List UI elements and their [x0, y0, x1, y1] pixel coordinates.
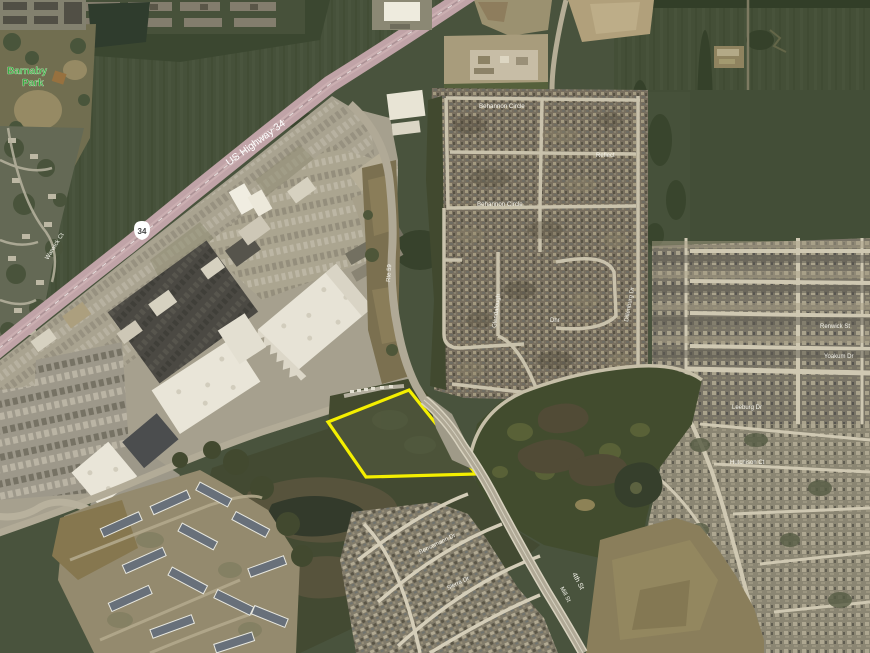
svg-text:Hutchison Ct: Hutchison Ct	[730, 460, 765, 466]
svg-text:Park: Park	[22, 78, 44, 89]
svg-text:34: 34	[138, 227, 147, 236]
svg-text:Yoakum Dr: Yoakum Dr	[824, 354, 853, 360]
svg-text:Renwick St: Renwick St	[820, 324, 850, 330]
svg-text:Behannon Circle: Behannon Circle	[477, 201, 523, 208]
svg-text:Leeburg Dr: Leeburg Dr	[732, 405, 762, 411]
svg-text:Barnaby: Barnaby	[7, 66, 47, 77]
svg-text:Behannon Circle: Behannon Circle	[479, 103, 525, 110]
svg-text:Dhr: Dhr	[550, 318, 560, 324]
svg-text:Reflect: Reflect	[596, 153, 615, 159]
svg-text:Rte 59: Rte 59	[386, 263, 393, 282]
